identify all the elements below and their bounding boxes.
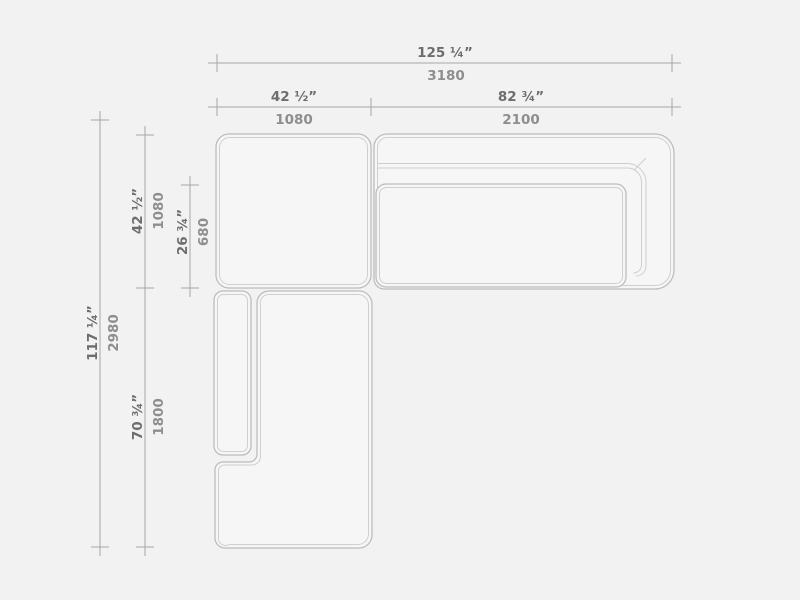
dim-label-mm: 680 [196, 218, 212, 246]
dim-overall-width: 125 ¼” 3180 [208, 45, 681, 84]
dim-label-inches: 82 ¾” [498, 89, 544, 105]
dim-corner-depth-and-chaise-length: 42 ½” 1080 70 ¾” 1800 [130, 126, 167, 556]
dim-label-mm: 3180 [427, 68, 465, 84]
dim-overall-depth: 117 ¼” 2980 [85, 111, 122, 556]
technical-drawing-canvas: 125 ¼” 3180 42 ½” 1080 82 ¾” 2100 117 ¼”… [0, 0, 800, 600]
arm-cushion-outer-outline [214, 291, 251, 455]
dim-label-inches: 42 ½” [271, 89, 317, 105]
dim-label-inches: 26 ¾” [175, 209, 191, 255]
dim-label-mm: 2100 [502, 112, 540, 128]
dim-label-mm: 2980 [106, 314, 122, 352]
corner-module [216, 134, 371, 288]
chaise-module [214, 291, 372, 548]
dim-seat-depth: 26 ¾” 680 [175, 176, 212, 297]
sofa-dimension-drawing: 125 ¼” 3180 42 ½” 1080 82 ¾” 2100 117 ¼”… [0, 0, 800, 600]
dim-label-inches: 70 ¾” [130, 394, 146, 440]
sofa-module [374, 134, 674, 289]
seat-cushion-outer-outline [376, 184, 626, 287]
dim-label-mm: 1080 [151, 192, 167, 230]
dim-label-inches: 125 ¼” [417, 45, 473, 61]
dim-module-widths: 42 ½” 1080 82 ¾” 2100 [208, 89, 681, 128]
dim-label-mm: 1080 [275, 112, 313, 128]
corner-module-outer-outline [216, 134, 371, 288]
dim-label-inches: 117 ¼” [85, 305, 101, 361]
dim-label-inches: 42 ½” [130, 188, 146, 234]
dim-label-mm: 1800 [151, 398, 167, 436]
